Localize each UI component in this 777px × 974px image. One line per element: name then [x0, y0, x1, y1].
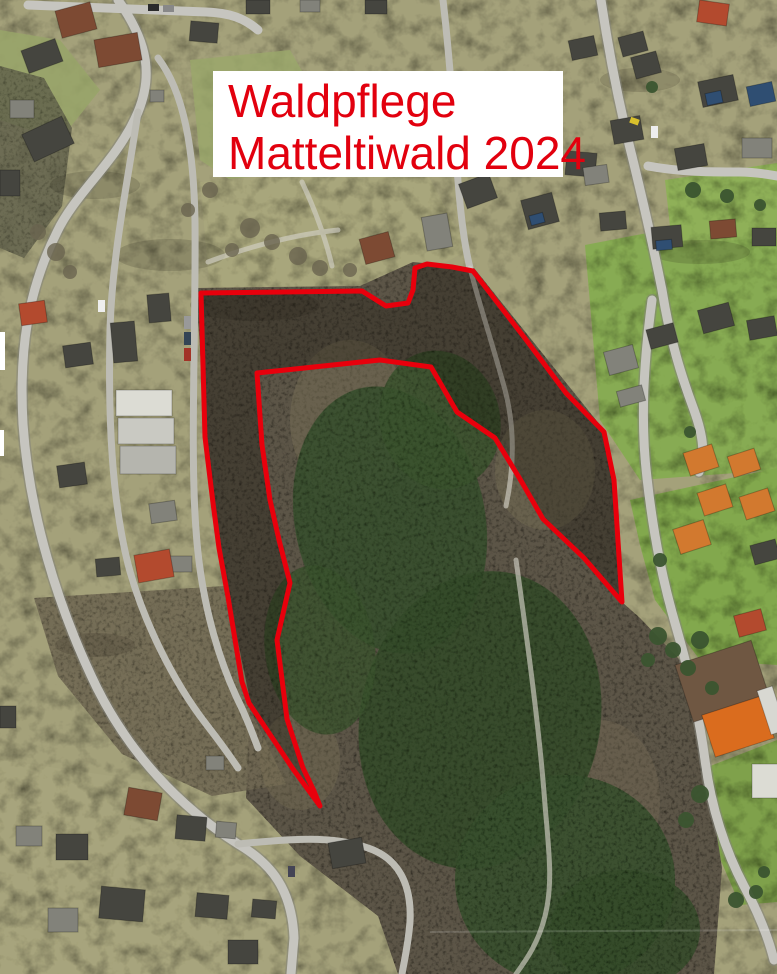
title-line-1: Waldpflege — [228, 75, 563, 127]
map-title-label: Waldpflege Matteltiwald 2024 — [213, 71, 563, 177]
map-viewport: Waldpflege Matteltiwald 2024 — [0, 0, 777, 974]
title-line-2: Matteltiwald 2024 — [228, 127, 563, 179]
